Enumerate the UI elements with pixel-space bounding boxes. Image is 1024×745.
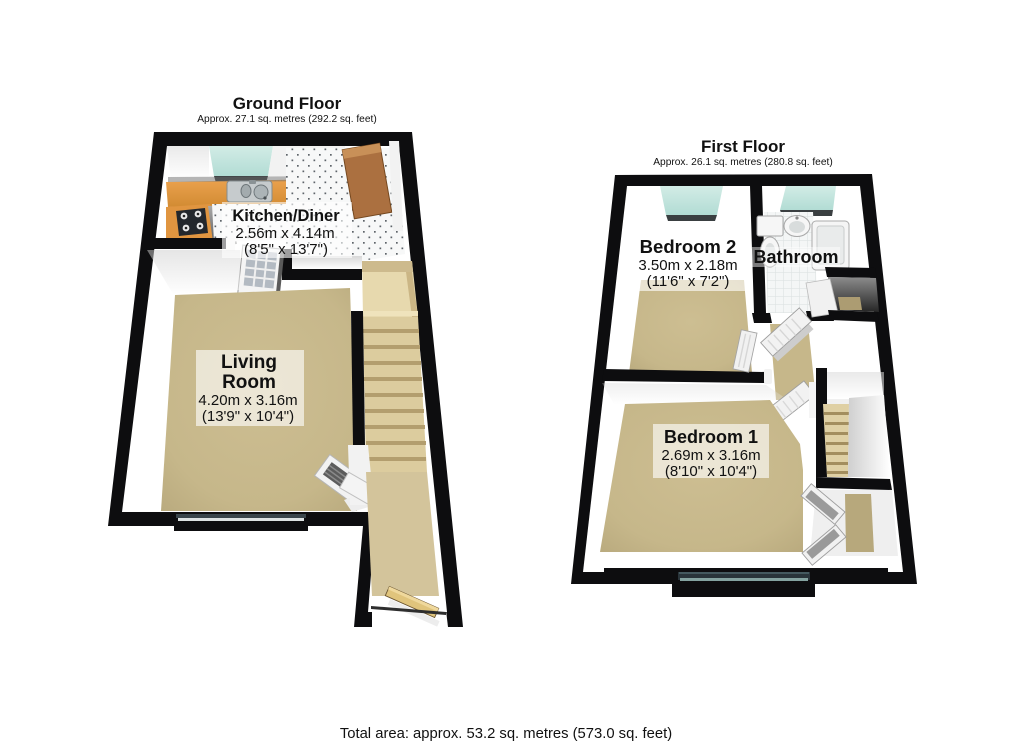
svg-text:2.69m x 3.16m: 2.69m x 3.16m — [661, 447, 760, 464]
svg-text:Total area: approx. 53.2 sq. m: Total area: approx. 53.2 sq. metres (573… — [340, 726, 672, 742]
svg-text:Bedroom 1: Bedroom 1 — [664, 427, 758, 447]
svg-text:(8'10" x 10'4"): (8'10" x 10'4") — [665, 463, 757, 480]
svg-text:Living: Living — [221, 352, 277, 373]
svg-text:Room: Room — [222, 372, 276, 393]
svg-text:Ground Floor: Ground Floor — [233, 94, 342, 113]
svg-text:Approx. 27.1 sq. metres (292.2: Approx. 27.1 sq. metres (292.2 sq. feet) — [197, 114, 377, 125]
svg-text:4.20m x 3.16m: 4.20m x 3.16m — [198, 392, 297, 409]
svg-text:Approx. 26.1 sq. metres (280.8: Approx. 26.1 sq. metres (280.8 sq. feet) — [653, 157, 833, 168]
svg-text:First Floor: First Floor — [701, 137, 785, 156]
svg-text:Bedroom 2: Bedroom 2 — [640, 236, 737, 257]
svg-text:(13'9" x 10'4"): (13'9" x 10'4") — [202, 408, 294, 425]
svg-text:Bathroom: Bathroom — [754, 247, 839, 267]
svg-text:Kitchen/Diner: Kitchen/Diner — [232, 207, 340, 225]
svg-text:2.56m x 4.14m: 2.56m x 4.14m — [235, 225, 334, 242]
svg-text:(8'5" x 13'7"): (8'5" x 13'7") — [244, 241, 328, 258]
svg-text:(11'6" x 7'2"): (11'6" x 7'2") — [647, 273, 730, 290]
svg-text:3.50m x 2.18m: 3.50m x 2.18m — [638, 257, 737, 274]
